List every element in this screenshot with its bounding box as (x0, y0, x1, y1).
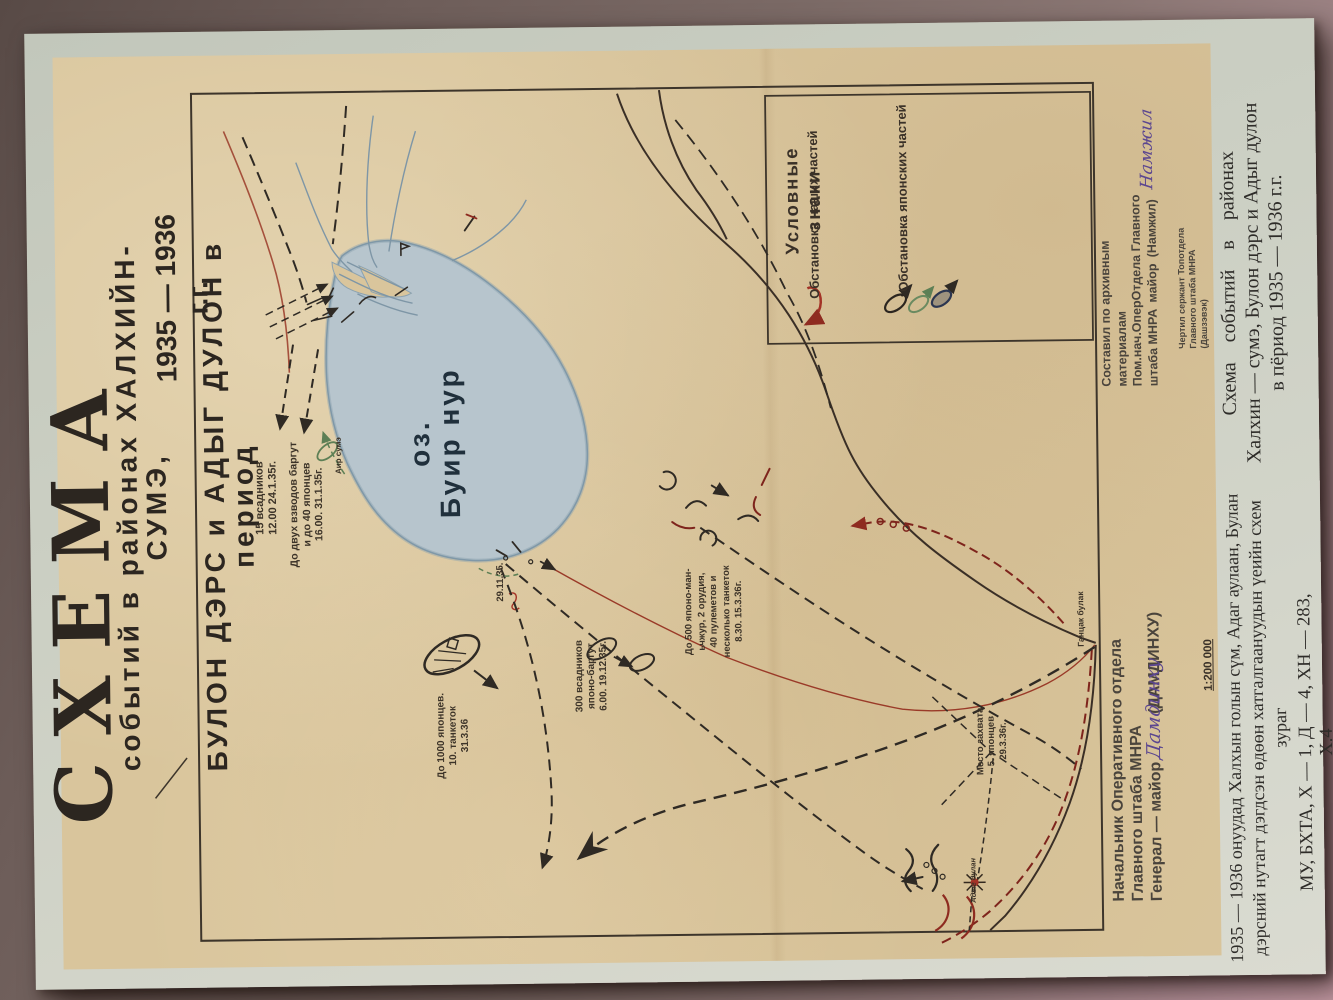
caption-archive-ref: МУ, БХТА, Х — 1, Д — 4, ХН — 283, Х.4 (1294, 587, 1320, 897)
place-label-gantsak-bulak: Ганцак булак (1075, 586, 1088, 652)
annotation-15-riders: 15 всадников 12.00 24.1.35г. (253, 428, 289, 568)
legend-item-our-forces: Обстановка наших частей (805, 99, 822, 299)
annotation-two-platoons: До двух взводов баргут и до 40 японцев 1… (287, 429, 333, 580)
khalkhin-gol-river (617, 85, 1099, 935)
map-subtitle-years: 1935 — 1936 г.г. (149, 203, 181, 393)
annotation-1000-japanese: До 1000 японцев. 10. танкеток 31.3.36 (435, 688, 480, 783)
legend-item-japanese-forces: Обстановка японских частей (893, 92, 910, 292)
lake-label: оз. Буир нур (404, 353, 470, 534)
place-label-air-sume: Аир сумэ (334, 433, 346, 479)
caption-mongolian: 1935 — 1936 онуудад Халхын голын сүм, Ад… (1220, 475, 1298, 981)
red-routes (223, 121, 1098, 954)
annotation-capture-site: Место захвата 5. японцев 29.3.36г. (974, 702, 1015, 780)
photo-background: СХЕМА событий в районах ХАЛХИЙН-СУМЭ, БУ… (0, 0, 1333, 1000)
dashed-routes (242, 97, 1098, 939)
caption-russian: Схема событий в районах Халхин — сумэ, Б… (1213, 47, 1293, 518)
legend-symbols (805, 281, 958, 325)
signature-draftsman: Чертил сержант Топотдела Главного штаба … (1175, 209, 1205, 349)
place-label-adyg-dulan: Адыг дулан (968, 855, 979, 905)
annotation-300-riders: 300 всадников японо-баргут 6.00. 19.12.3… (573, 626, 614, 726)
book-page: СХЕМА событий в районах ХАЛХИЙН-СУМЭ, БУ… (24, 18, 1326, 990)
signature-compiler-autograph: Намжил (1136, 78, 1159, 191)
annotation-date-29-11-35: 29.11.35. (495, 557, 508, 607)
map-scale: 1:200 000 (1202, 634, 1218, 696)
annotation-500-japanese: До 500 японо-ман- ьчжур, 2 орудия, 40 пу… (683, 559, 750, 664)
legend-title: Условные знаки (780, 123, 806, 278)
signature-chief-autograph: Дамдинху (1141, 608, 1167, 761)
